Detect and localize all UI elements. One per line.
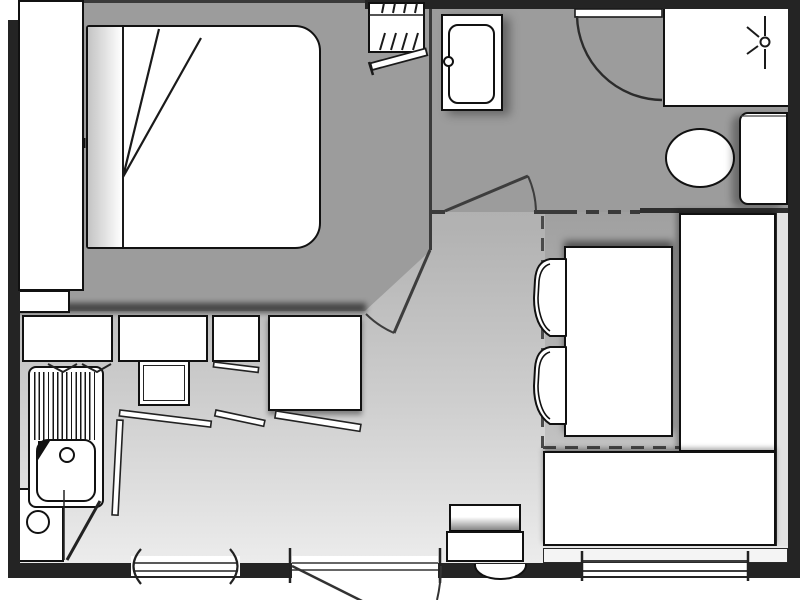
bedside-box bbox=[18, 290, 70, 313]
sink-drainer-stripes bbox=[34, 372, 97, 440]
bathroom-wall-segment-b bbox=[534, 210, 564, 214]
bench-seat-horizontal bbox=[543, 451, 776, 546]
shower-tray bbox=[663, 9, 788, 107]
sink-tap-hole bbox=[59, 447, 75, 463]
burner-circle bbox=[26, 510, 50, 534]
bathroom-wall-dashed bbox=[564, 210, 640, 214]
headboard-cabinet bbox=[18, 0, 84, 291]
counter-unit-3 bbox=[212, 315, 260, 362]
counter-unit-1 bbox=[22, 315, 113, 362]
hob-square bbox=[138, 360, 190, 406]
toilet-cistern bbox=[739, 112, 788, 205]
washbasin-bowl bbox=[448, 24, 495, 104]
hob-inner-frame bbox=[143, 365, 185, 401]
bed-sheet-band bbox=[88, 27, 124, 247]
wall-heater-shade bbox=[451, 517, 519, 532]
dinette-outline-dashed-horizontal bbox=[543, 446, 679, 449]
wall-heater-bottom bbox=[446, 531, 524, 562]
top-wall-thin bbox=[84, 0, 368, 3]
dinette-outline-dashed-vertical bbox=[541, 216, 544, 448]
bathroom-wall-segment-a bbox=[429, 210, 445, 214]
window-ledge-strip bbox=[543, 548, 788, 563]
fridge-unit bbox=[268, 315, 362, 411]
counter-unit-2 bbox=[118, 315, 208, 362]
washbasin-drain bbox=[443, 56, 454, 67]
top-wall bbox=[365, 0, 800, 9]
wardrobe bbox=[368, 2, 425, 53]
dinette-table bbox=[564, 246, 673, 437]
bench-seat-vertical bbox=[679, 213, 776, 452]
bed-mattress bbox=[86, 25, 321, 249]
entry-door-opening bbox=[292, 556, 438, 578]
floor-plan bbox=[0, 0, 800, 600]
right-wall bbox=[788, 0, 800, 578]
right-wall-ledge bbox=[776, 213, 788, 546]
window-left bbox=[131, 556, 240, 576]
toilet-bowl bbox=[665, 128, 735, 188]
